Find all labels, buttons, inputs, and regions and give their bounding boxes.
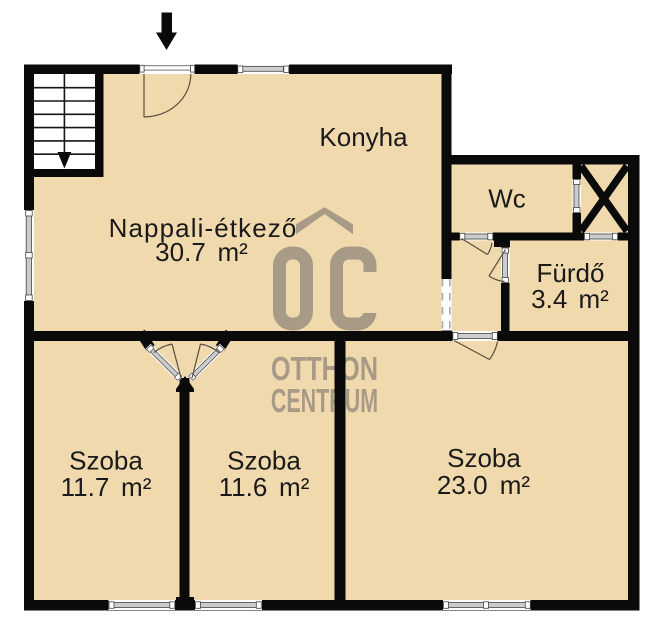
svg-text:Szoba: Szoba xyxy=(447,443,521,473)
svg-text:23.0 m²: 23.0 m² xyxy=(437,470,530,500)
svg-text:11.7 m²: 11.7 m² xyxy=(61,472,152,502)
svg-text:Konyha: Konyha xyxy=(319,122,408,152)
svg-text:3.4 m²: 3.4 m² xyxy=(531,284,609,314)
svg-text:CENTRUM: CENTRUM xyxy=(271,382,378,419)
svg-text:Wc: Wc xyxy=(488,184,526,214)
svg-text:Szoba: Szoba xyxy=(227,446,301,476)
svg-text:30.7 m²: 30.7 m² xyxy=(155,237,248,267)
svg-text:11.6 m²: 11.6 m² xyxy=(219,472,310,502)
svg-text:Szoba: Szoba xyxy=(69,446,143,476)
